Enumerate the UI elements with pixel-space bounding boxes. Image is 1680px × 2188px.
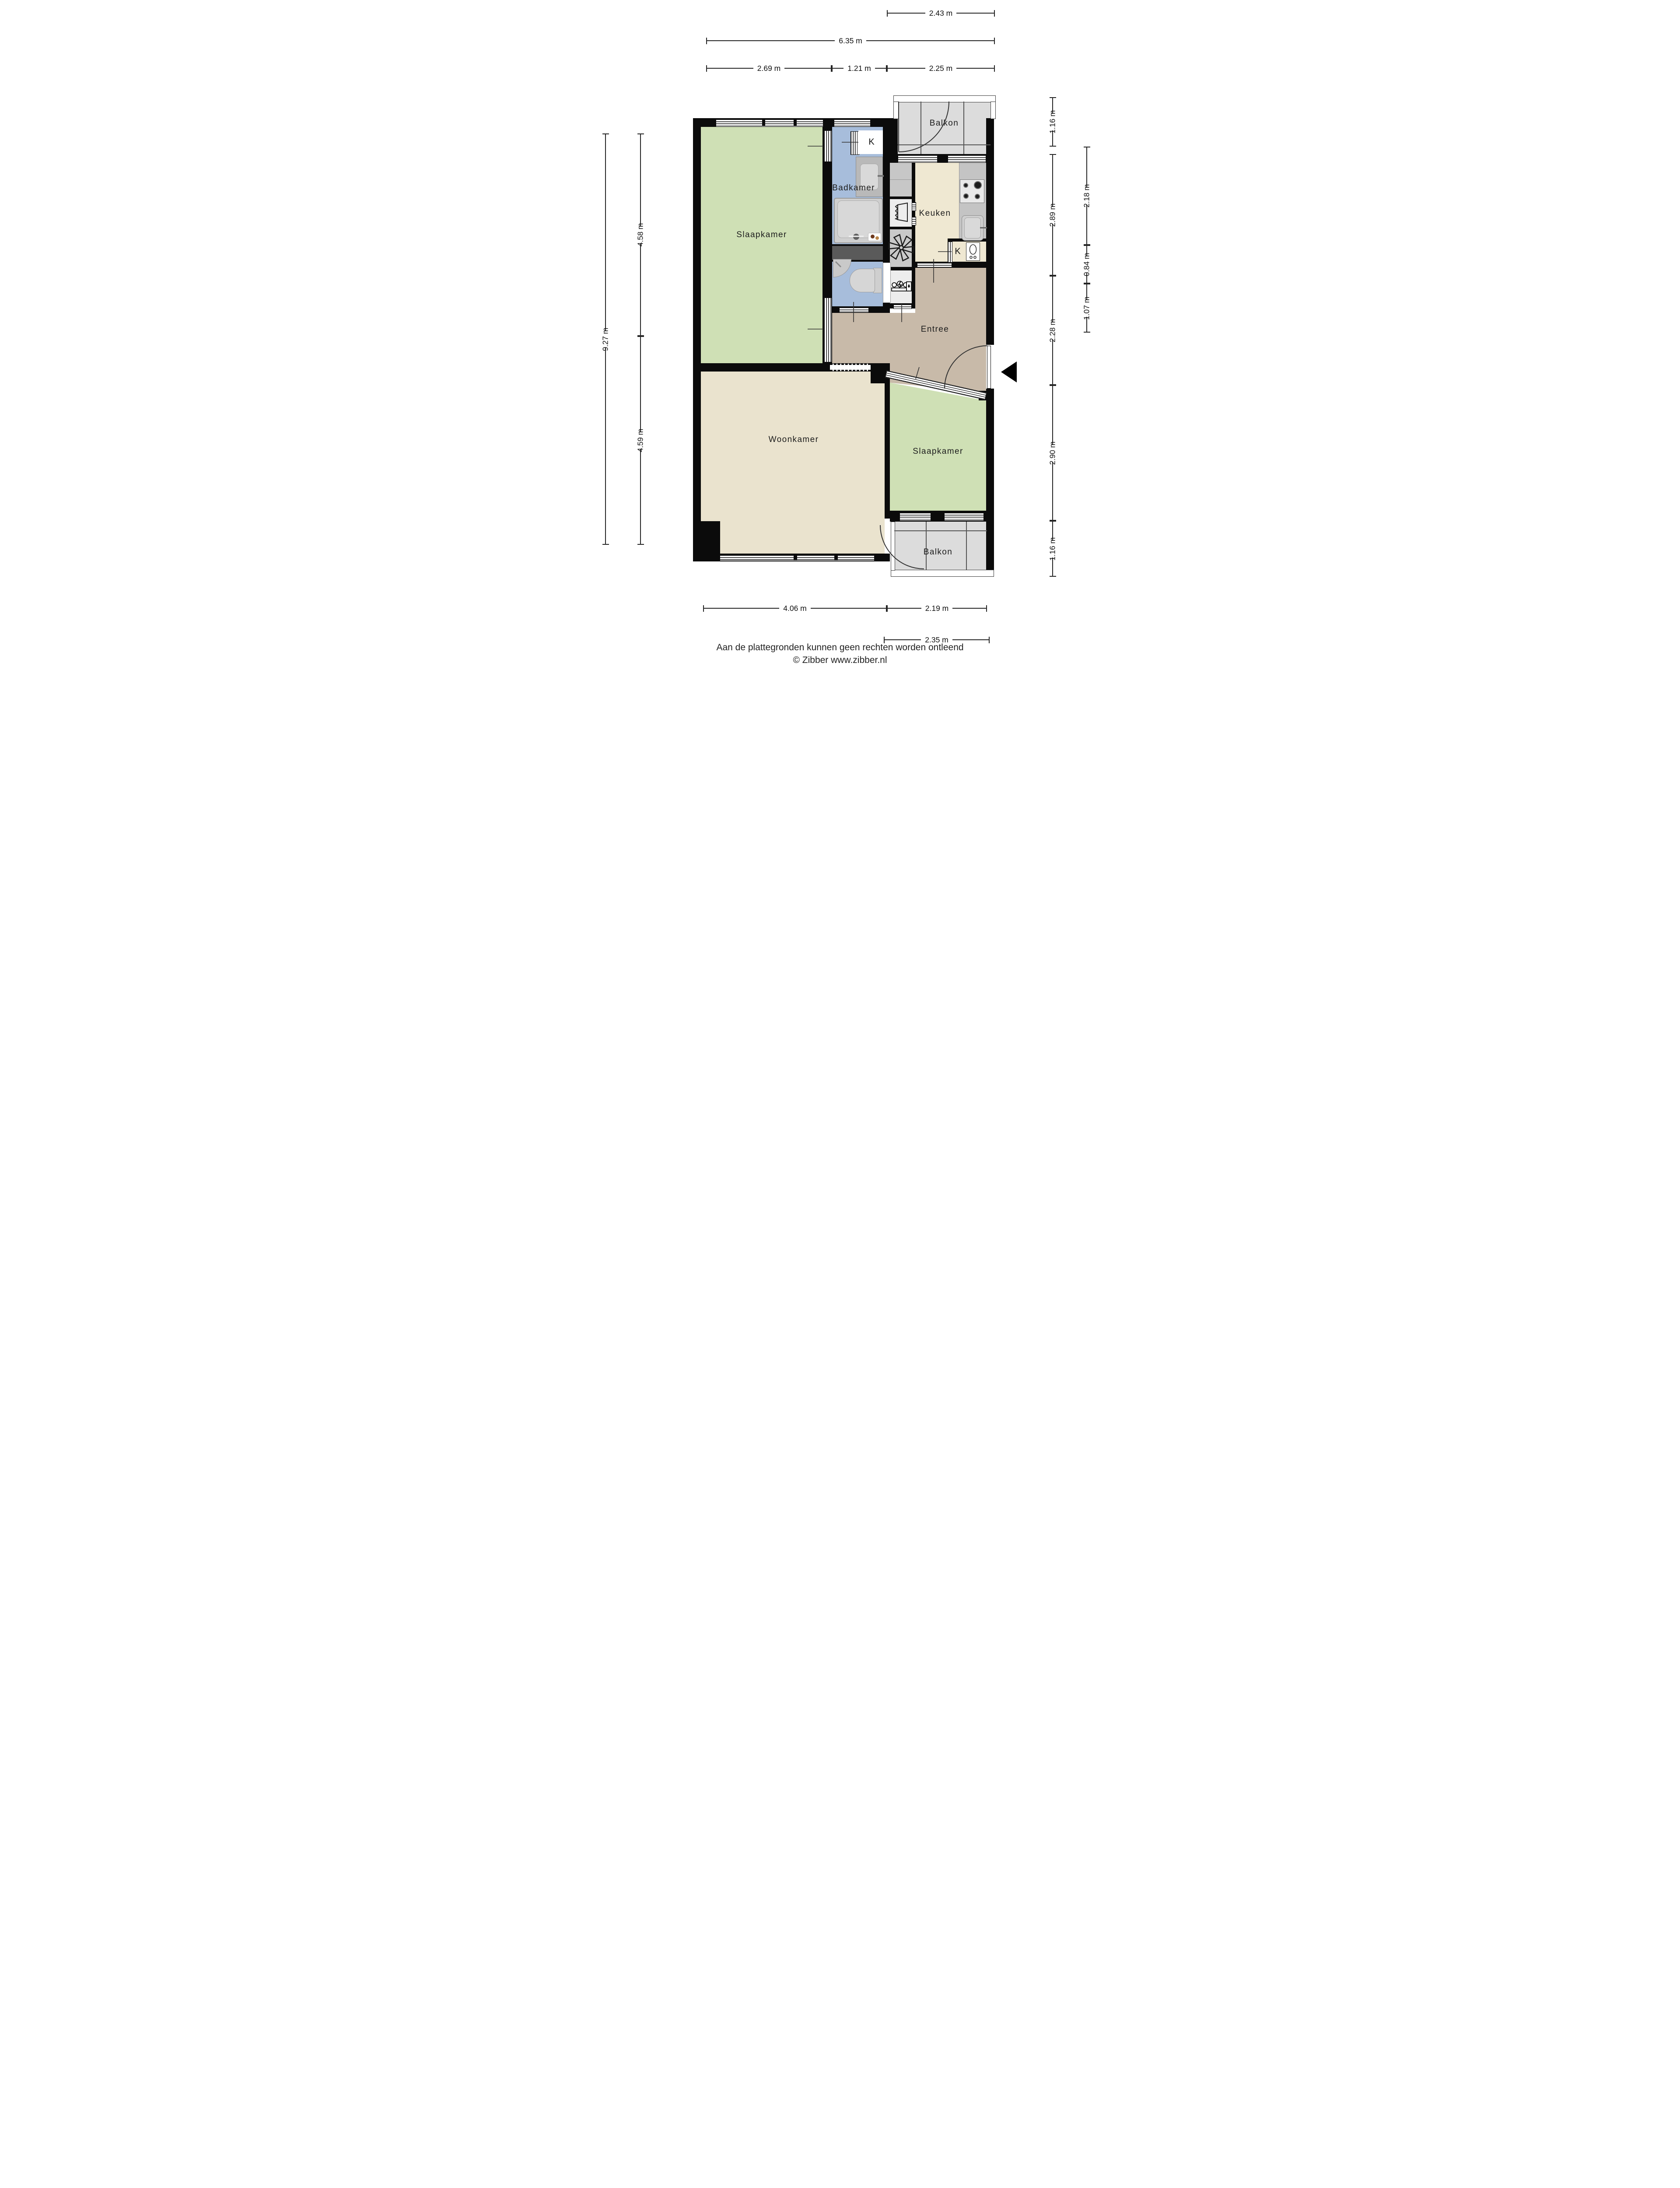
dim-bottom-219: 2.19 m [887, 604, 987, 612]
keuken-sink-tap [980, 227, 987, 228]
footer-copyright: © Zibber www.zibber.nl [588, 655, 1092, 666]
door-front-leaf [987, 346, 991, 389]
dim-right-290: 2.90 m [1049, 385, 1057, 521]
footer-disclaimer: Aan de plattegronden kunnen geen rechten… [588, 642, 1092, 653]
wall-left [693, 118, 701, 561]
wall-cabinet-wardrobe [890, 196, 915, 199]
window-balkonTop-left [898, 155, 938, 163]
label-balkon-top: Balkon [930, 119, 959, 128]
wall-wardrobe-fan [890, 227, 915, 229]
soapdish-dot-1 [871, 235, 875, 238]
room-entree-main [832, 313, 986, 363]
wc-toilet-bowl [850, 269, 875, 292]
balkonTop-divider-2 [963, 102, 964, 154]
railing-balkonTop-left [893, 102, 899, 119]
label-keuken: Keuken [919, 209, 951, 218]
label-slaapkamer-right: Slaapkamer [913, 447, 963, 456]
dim-right-107: 1.07 m [1083, 284, 1091, 333]
label-badkamer: Badkamer [832, 183, 875, 193]
dim-left-458: 4.58 m [637, 133, 644, 336]
label-keuken-k: K [955, 247, 960, 257]
dim-left-927: 9.27 m [602, 133, 609, 545]
dim-top-635: 6.35 m [706, 37, 995, 45]
room-woonkamer [701, 372, 885, 554]
window-strip-boiler [948, 242, 952, 263]
closet-fan-room [890, 229, 912, 267]
stove-burner-3 [963, 193, 969, 199]
label-woonkamer: Woonkamer [769, 435, 819, 445]
room-slaapkamer-left [701, 127, 822, 363]
room-entree-upper [915, 268, 986, 313]
railing-balkonTop-right [990, 102, 996, 119]
floorplan-canvas: K K Slaapkamer Badkamer Keuken Entree Wo… [588, 0, 1092, 672]
dim-top-225: 2.25 m [887, 64, 995, 72]
door-strip-wardrobe-2 [912, 217, 916, 225]
opening-woonkamer-entree [830, 364, 871, 371]
closet-meter-cupboard [890, 270, 912, 303]
window-strip-badkamer-k [850, 131, 859, 155]
stove-burner-1 [963, 183, 968, 188]
window-woonkamer-bottom [720, 555, 875, 561]
window-mullion-4 [834, 555, 838, 560]
dim-top-269: 2.69 m [706, 64, 832, 72]
railing-balkonBottom-left [891, 522, 895, 571]
window-slaapL-top [716, 119, 823, 127]
dim-left-459: 4.59 m [637, 336, 644, 545]
window-mullion-3 [794, 555, 797, 560]
balkonBottom-divider-1 [926, 522, 927, 570]
boiler-geyser-box [966, 242, 980, 261]
bathtub-soapdish [868, 233, 881, 241]
dim-right-116b: 1.16 m [1049, 521, 1057, 577]
entrance-arrow-icon [1001, 361, 1017, 382]
railing-balkonBottom [891, 570, 994, 577]
stove-burner-4 [975, 194, 980, 199]
dim-right-116t: 1.16 m [1049, 97, 1057, 147]
door-wc [883, 263, 891, 303]
window-keuken-bottom [917, 263, 952, 268]
balkonBottom-divider-3 [894, 530, 987, 531]
window-badkamer-top [834, 119, 871, 127]
door-strip-wardrobe-1 [912, 202, 916, 211]
cabinet-shelf-line [890, 179, 912, 180]
keuken-sink-basin [964, 217, 981, 238]
bathtub-faucet [853, 234, 859, 240]
dim-top-243: 2.43 m [887, 9, 995, 17]
window-slaapR-bottom-right [944, 512, 984, 521]
balkonTop-divider-3 [898, 144, 990, 145]
dim-right-228: 2.28 m [1049, 276, 1057, 385]
wall-balkon-top-left [890, 118, 898, 154]
stove-burner-2 [974, 181, 982, 189]
dim-right-289: 2.89 m [1049, 154, 1057, 276]
wall-right-upper [986, 118, 994, 345]
window-slaapR-bottom-left [899, 512, 931, 521]
wall-woon-slaap-divider [885, 383, 890, 519]
label-slaapkamer-left: Slaapkamer [736, 230, 787, 240]
door-strip-slaapL-entree [824, 298, 832, 362]
wall-fan-meter [890, 267, 915, 270]
wall-right-lower [986, 389, 994, 570]
cabinet-top [890, 163, 912, 197]
label-badkamer-k: K [868, 137, 874, 147]
balkonTop-divider-1 [920, 102, 921, 154]
label-balkon-bottom: Balkon [924, 547, 953, 557]
dim-right-084: 0.84 m [1083, 245, 1091, 284]
window-balkonTop-right [948, 155, 986, 163]
window-mullion-2 [794, 119, 797, 126]
railing-balkonTop [893, 95, 996, 102]
dim-right-218: 2.18 m [1083, 147, 1091, 245]
door-strip-slaapL-top [824, 130, 832, 162]
wall-closet-column-right [912, 163, 915, 303]
closet-wardrobe [890, 199, 912, 227]
room-balkon-bottom [894, 522, 987, 570]
window-wc-bottom [839, 307, 869, 313]
soapdish-dot-2 [875, 236, 879, 240]
dim-bottom-406: 4.06 m [703, 604, 887, 612]
window-meter-bottom [893, 304, 912, 309]
dim-top-121: 1.21 m [832, 64, 887, 72]
window-mullion-1 [762, 119, 765, 126]
balkonBottom-divider-2 [966, 522, 967, 570]
label-entree: Entree [921, 325, 949, 334]
